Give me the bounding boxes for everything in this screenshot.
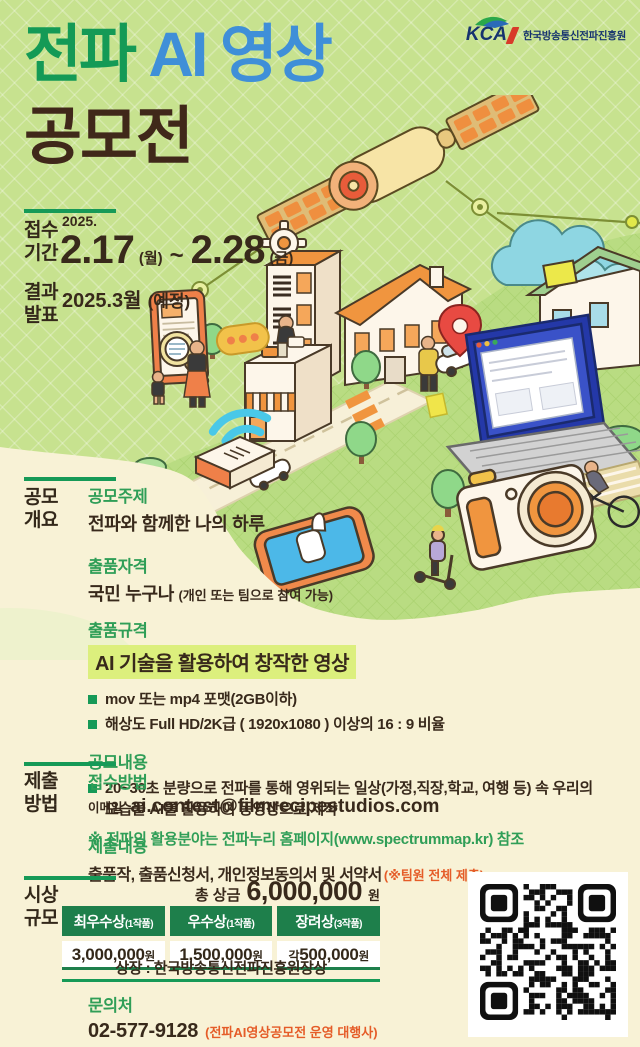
title-part-radio: 전파 — [24, 20, 134, 90]
email-line: 이메일 ai.contest@filmrecipestudios.com — [88, 796, 439, 818]
topic-heading: 공모주제 — [88, 483, 148, 507]
apply-year: 2025. — [62, 213, 97, 229]
prize-name-text: 우수상 — [188, 915, 227, 931]
poster-title-line1: 전파 AI 영상 — [24, 22, 330, 88]
end-day: (금) — [270, 247, 294, 268]
spec-item-text: 해상도 Full HD/2K급 ( 1920x1080 ) 이상의 16 : 9… — [105, 714, 445, 735]
contact-block: 문의처 02-577-9128 (전파AI영상공모전 운영 대행사) — [88, 992, 488, 1043]
bullet-square-icon — [88, 720, 97, 729]
start-date: 2.17 — [60, 228, 134, 273]
topic-text: 전파와 함께한 나의 하루 — [88, 510, 265, 536]
prize-name-text: 장려상 — [295, 915, 334, 931]
bullet-square-icon — [88, 695, 97, 704]
result-note: (예정) — [148, 287, 191, 312]
method-heading: 접수방법 — [88, 769, 148, 793]
prize-count: (3작품) — [334, 919, 362, 930]
apply-dates: 2.17 (월) ~ 2.28 (금) — [60, 228, 293, 273]
spec-item-text: mov 또는 mp4 포맷(2GB이하) — [105, 689, 297, 710]
certificate-line: 상장 : 한국방송통신전파진흥원장상 — [62, 957, 380, 978]
email-prefix: 이메일 — [88, 797, 123, 816]
submission-items-heading: 제출내용 — [88, 833, 148, 857]
submission-content: 접수방법 이메일 ai.contest@filmrecipestudios.co… — [88, 769, 603, 885]
eligibility-heading: 출품자격 — [88, 553, 148, 577]
submission-section-label: 제출 방법 — [24, 770, 58, 816]
section-divider — [24, 762, 116, 766]
email-address: ai.contest@filmrecipestudios.com — [131, 796, 440, 818]
result-label: 결과 발표 — [24, 281, 58, 327]
total-prize: 총 상금 6,000,000 원 — [62, 876, 380, 907]
prize-name-excellence: 우수상(1작품) — [170, 906, 273, 936]
poster-title-line2: 공모전 — [24, 104, 192, 170]
spec-highlight: AI 기술을 활용하여 창작한 영상 — [88, 645, 356, 679]
shop-building — [245, 345, 331, 441]
result-date: 2025.3월 (예정) — [62, 284, 190, 313]
kca-slash-icon — [506, 27, 520, 44]
prize-count: (1작품) — [226, 919, 254, 930]
kca-logo-mark: KCA — [466, 24, 516, 46]
qr-card — [468, 872, 628, 1037]
end-date: 2.28 — [191, 228, 265, 273]
prize-name-encouragement: 장려상(3작품) — [277, 906, 380, 936]
spec-item: mov 또는 mp4 포맷(2GB이하) — [88, 689, 297, 710]
contact-phone: 02-577-9128 — [88, 1020, 198, 1043]
contest-poster: KCA 한국방송통신전파진흥원 전파 AI 영상 공모전 접수 기간 2025.… — [0, 0, 640, 1047]
eligibility-text: 국민 누구나 (개인 또는 팀으로 참여 가능) — [88, 580, 333, 606]
total-prize-label: 총 상금 — [195, 884, 241, 905]
awards-section-label: 시상 규모 — [24, 884, 58, 930]
kca-swoosh-icon — [473, 12, 511, 28]
start-day: (월) — [139, 247, 163, 268]
prize-name-grand: 최우수상(1작품) — [62, 906, 165, 936]
contact-heading: 문의처 — [88, 992, 133, 1016]
title-part-ai-video: AI 영상 — [134, 20, 330, 90]
prize-name-text: 최우수상 — [74, 915, 125, 931]
contact-note: (전파AI영상공모전 운영 대행사) — [205, 1022, 377, 1041]
spec-item: 해상도 Full HD/2K급 ( 1920x1080 ) 이상의 16 : 9… — [88, 714, 445, 735]
total-prize-amount: 6,000,000 — [246, 876, 362, 907]
section-divider — [24, 477, 116, 481]
eligibility-note: (개인 또는 팀으로 참여 가능) — [178, 588, 333, 603]
total-prize-unit: 원 — [368, 885, 380, 904]
date-separator: ~ — [170, 242, 184, 270]
result-month: 2025.3월 — [62, 284, 142, 313]
contact-line: 02-577-9128 (전파AI영상공모전 운영 대행사) — [88, 1020, 378, 1043]
spec-heading: 출품규격 — [88, 617, 148, 641]
certificate-underline — [62, 979, 380, 982]
eligibility-main: 국민 누구나 — [88, 584, 174, 604]
apply-period-label: 접수 기간 — [24, 219, 58, 265]
prize-count: (1작품) — [125, 919, 153, 930]
satellite-icon — [253, 95, 542, 252]
kca-logo: KCA 한국방송통신전파진흥원 — [466, 24, 626, 46]
qr-code — [480, 884, 616, 1025]
person-child — [152, 372, 164, 405]
overview-section-label: 공모 개요 — [24, 486, 58, 532]
org-name: 한국방송통신전파진흥원 — [523, 28, 626, 43]
